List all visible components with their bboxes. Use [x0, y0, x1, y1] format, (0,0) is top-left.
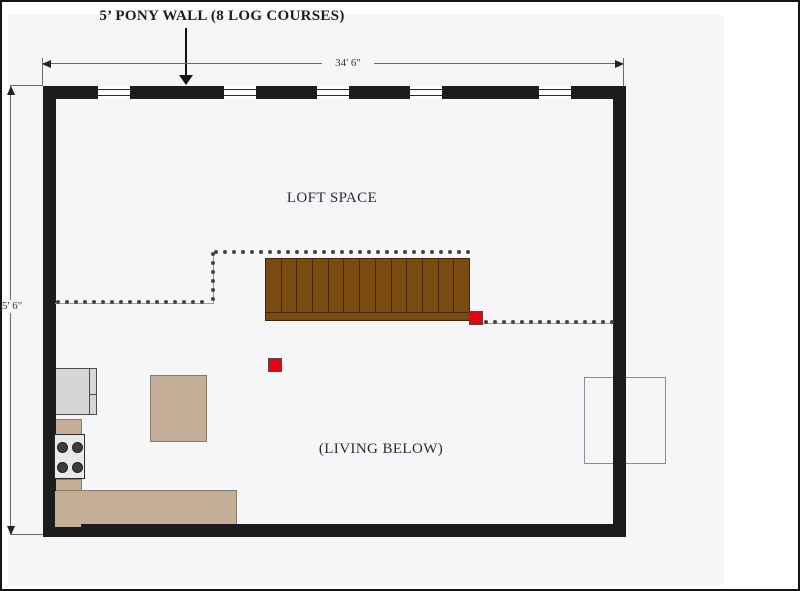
staircase	[265, 258, 470, 321]
loft-post-marker	[268, 358, 282, 372]
living-below-label: (LIVING BELOW)	[306, 441, 456, 458]
stair-tread	[344, 259, 360, 312]
dim-arrow-left-icon	[42, 60, 51, 68]
counter-l-horizontal	[54, 490, 237, 528]
stair-stringer-line	[266, 312, 469, 313]
stair-tread	[392, 259, 408, 312]
window-icon	[317, 86, 349, 99]
top-wall-windows	[2, 86, 800, 99]
counter-l-joint	[55, 491, 81, 527]
window-icon	[224, 86, 256, 99]
window-icon	[410, 86, 442, 99]
top-dimension-ext-right	[623, 58, 624, 86]
stair-tread	[282, 259, 298, 312]
wall-right	[613, 86, 626, 537]
burner-icon	[57, 442, 68, 453]
window-icon	[539, 86, 571, 99]
stair-treads	[266, 259, 469, 312]
pony-wall-arrow	[185, 28, 187, 75]
fridge-icon	[53, 368, 97, 415]
railing-line-step	[213, 253, 214, 304]
stair-tread	[360, 259, 376, 312]
left-dimension-ext-bottom	[10, 534, 43, 535]
railing-line-left	[55, 303, 214, 304]
stair-tread	[266, 259, 282, 312]
fridge-door-line	[89, 369, 90, 414]
burner-icon	[57, 462, 68, 473]
stair-tread	[297, 259, 313, 312]
stair-tread	[376, 259, 392, 312]
floorplan-drawing: 5’ PONY WALL (8 LOG COURSES) 34' 6" 5' 6…	[0, 0, 800, 591]
height-dimension-label: 5' 6"	[0, 300, 24, 313]
island-table	[150, 375, 207, 442]
loft-space-label: LOFT SPACE	[257, 190, 407, 207]
stair-tread	[439, 259, 455, 312]
burner-icon	[72, 442, 83, 453]
stair-tread	[407, 259, 423, 312]
stair-tread	[313, 259, 329, 312]
fridge-handle-line	[89, 394, 97, 395]
burner-icon	[72, 462, 83, 473]
width-dimension-label: 34' 6"	[322, 57, 374, 70]
counter-segment	[54, 419, 82, 435]
stair-tread	[329, 259, 345, 312]
stove-icon	[54, 434, 85, 479]
pony-wall-arrowhead-icon	[179, 75, 193, 85]
pony-wall-annotation: 5’ PONY WALL (8 LOG COURSES)	[92, 8, 352, 25]
stair-tread	[423, 259, 439, 312]
railing-line-right	[470, 323, 613, 324]
top-dimension-ext-left	[42, 58, 43, 86]
stair-tread	[454, 259, 469, 312]
stair-post-marker	[469, 311, 483, 325]
wall-bottom	[43, 524, 626, 537]
window-icon	[98, 86, 130, 99]
